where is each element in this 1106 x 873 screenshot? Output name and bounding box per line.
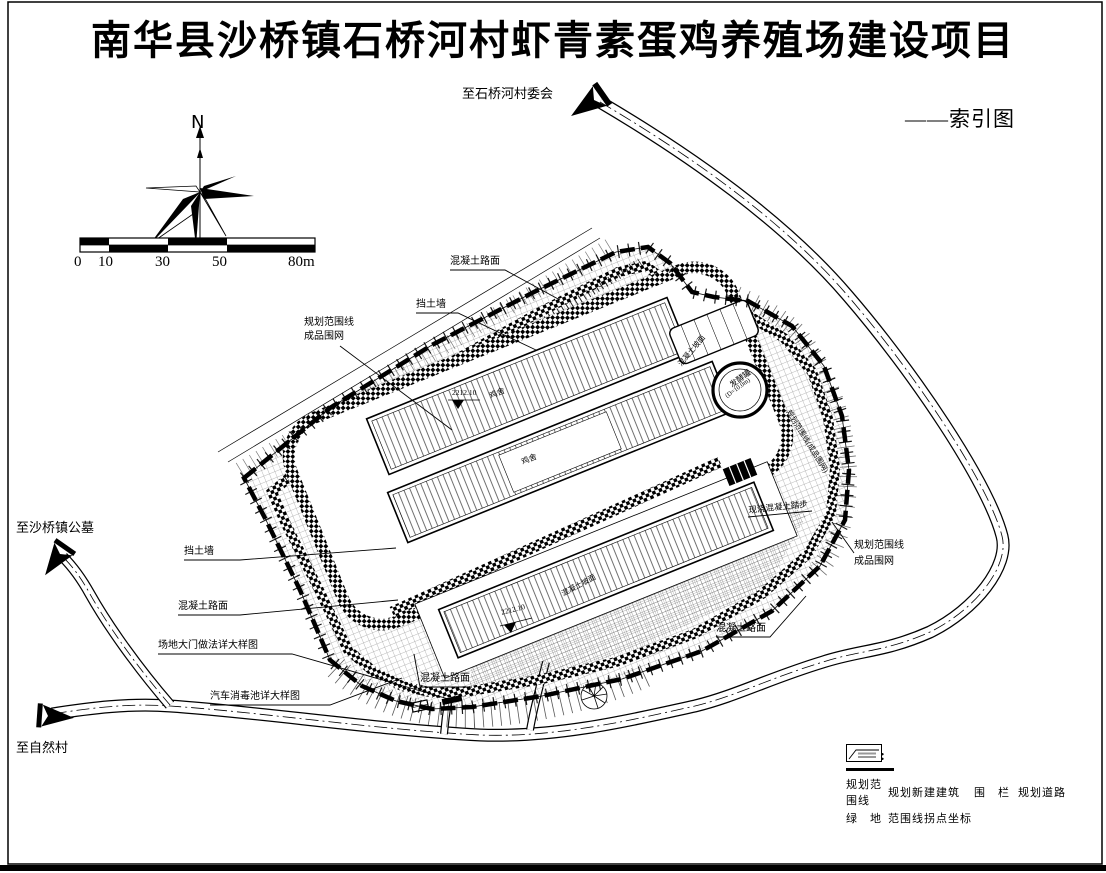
site-area (218, 228, 849, 716)
legend: 图例: 规划范围线 规划新建建筑 围 栏 规划道路 绿 地 (846, 744, 1102, 831)
legend-symbol-corner-coordinate (846, 744, 882, 762)
callout-car-disinfection: 汽车消毒池详大样图 (210, 691, 300, 703)
scale-tick-0: 0 (74, 254, 82, 271)
legend-label-planned-road: 规划道路 (1018, 784, 1102, 800)
scale-bar (80, 238, 315, 252)
drawing-title: 南华县沙桥镇石桥河村虾青素蛋鸡养殖场建设项目 (0, 8, 1106, 66)
elevation-text-a: 2212.10 (452, 388, 476, 397)
legend-title-underline (846, 768, 894, 771)
scale-tick-30: 30 (155, 254, 170, 271)
callout-concrete-road-right: 混凝土路面 (716, 623, 766, 635)
dest-cemetery: 至沙桥镇公墓 (16, 520, 94, 536)
index-map-label: ——索引图 (905, 103, 1015, 133)
legend-label-new-building: 规划新建建筑 (888, 784, 974, 800)
callout-boundary-line-left: 规划范围线 (304, 317, 354, 329)
dest-natural-village: 至自然村 (16, 740, 68, 756)
legend-label-green-space: 绿 地 (846, 810, 888, 826)
legend-label-boundary-line: 规划范围线 (846, 776, 888, 808)
callout-retaining-wall-top: 挡土墙 (416, 299, 446, 311)
callout-gate-detail: 场地大门做法详大样图 (158, 640, 258, 652)
dest-village-committee: 至石桥河村委会 (462, 86, 553, 102)
drawing-sheet: { "title": "南华县沙桥镇石桥河村虾青素蛋鸡养殖场建设项目", "in… (0, 0, 1106, 873)
legend-label-corner-coordinate: 范围线拐点坐标 (888, 810, 974, 826)
legend-title: 图例: (846, 744, 1102, 765)
callout-concrete-road-left: 混凝土路面 (178, 601, 228, 613)
scale-tick-10: 10 (98, 254, 113, 271)
north-arrow (146, 126, 254, 246)
callout-boundary-line-right: 规划范围线 (854, 540, 904, 552)
callout-fence-left: 成品围网 (304, 331, 344, 343)
north-label: N (191, 112, 204, 133)
legend-label-fence: 围 栏 (974, 784, 1018, 800)
callout-concrete-road-bottom: 混凝土路面 (420, 673, 470, 685)
callout-concrete-road-top: 混凝土路面 (450, 256, 500, 268)
callout-retaining-wall-left: 挡土墙 (184, 546, 214, 558)
callout-fence-right: 成品围网 (854, 556, 894, 568)
scale-tick-80: 80m (288, 254, 315, 271)
scale-tick-50: 50 (212, 254, 227, 271)
